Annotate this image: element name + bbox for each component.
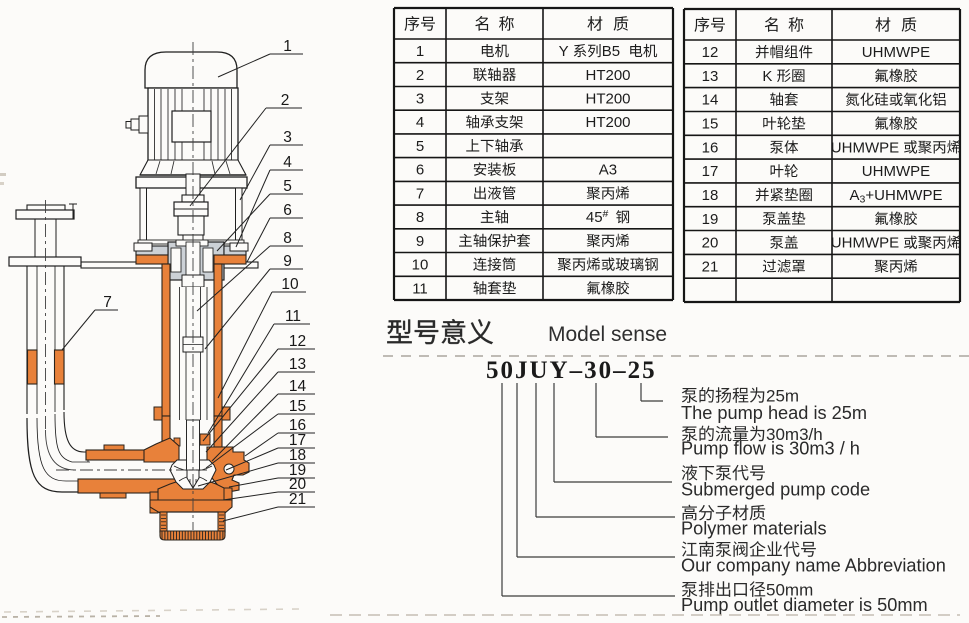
svg-text:3: 3 [283,129,292,146]
svg-text:Pump flow is 30m3 / h: Pump flow is 30m3 / h [681,439,860,459]
svg-text:A: A [850,187,860,204]
svg-text:9: 9 [283,253,292,270]
svg-text:9: 9 [416,233,424,250]
svg-text:6: 6 [416,162,424,179]
svg-text:21: 21 [289,491,306,508]
svg-text:12: 12 [702,44,719,61]
svg-text:10: 10 [281,276,299,293]
svg-text:12: 12 [289,333,306,350]
svg-text:6: 6 [283,202,292,219]
svg-text:3: 3 [416,91,424,108]
svg-text:HT200: HT200 [586,114,631,131]
svg-text:A3: A3 [599,162,617,179]
svg-text:7: 7 [103,294,112,311]
svg-text:5: 5 [283,178,292,195]
svg-text:UHMWPE: UHMWPE [831,139,899,156]
svg-text:21: 21 [702,259,719,276]
svg-text:K: K [762,68,772,85]
svg-text:14: 14 [702,92,719,109]
svg-text:5: 5 [416,138,424,155]
svg-text:19: 19 [702,211,719,228]
svg-text:HT200: HT200 [586,67,631,84]
svg-text:8: 8 [416,209,424,226]
svg-text:15: 15 [289,398,306,415]
svg-text:11: 11 [285,308,301,325]
svg-text:Our company name Abbreviation: Our company name Abbreviation [681,556,946,576]
svg-text:UHMWPE: UHMWPE [831,235,899,252]
svg-text:The pump head is 25m: The pump head is 25m [681,403,867,423]
svg-text:18: 18 [702,187,719,204]
svg-text:+UHMWPE: +UHMWPE [865,187,942,204]
svg-text:8: 8 [283,230,292,247]
svg-text:13: 13 [702,68,719,85]
svg-text:45: 45 [586,209,603,226]
svg-text:1: 1 [416,43,424,60]
svg-text:10: 10 [412,257,429,274]
svg-text:16: 16 [702,139,719,156]
svg-text:15: 15 [702,116,719,133]
svg-text:#: # [603,208,609,220]
svg-text:17: 17 [702,163,719,180]
svg-text:HT200: HT200 [586,91,631,108]
svg-text:7: 7 [416,185,424,202]
svg-text:B5: B5 [602,43,620,60]
svg-text:2: 2 [281,92,290,109]
svg-text:2: 2 [416,67,424,84]
svg-text:Polymer materials: Polymer materials [681,519,827,539]
svg-text:1: 1 [283,38,292,55]
svg-text:UHMWPE: UHMWPE [862,163,930,180]
svg-text:13: 13 [289,356,306,373]
svg-text:11: 11 [412,280,428,297]
svg-text:50JUY–30–25: 50JUY–30–25 [486,357,657,384]
svg-text:4: 4 [283,154,292,171]
svg-text:20: 20 [702,235,719,252]
svg-text:Pump outlet diameter is 50mm: Pump outlet diameter is 50mm [681,595,928,615]
svg-text:Submerged pump code: Submerged pump code [681,480,870,500]
svg-text:Model sense: Model sense [548,323,667,346]
svg-text:UHMWPE: UHMWPE [862,44,930,61]
svg-text:Y: Y [559,43,569,60]
svg-text:14: 14 [289,378,307,395]
svg-text:4: 4 [416,114,424,131]
